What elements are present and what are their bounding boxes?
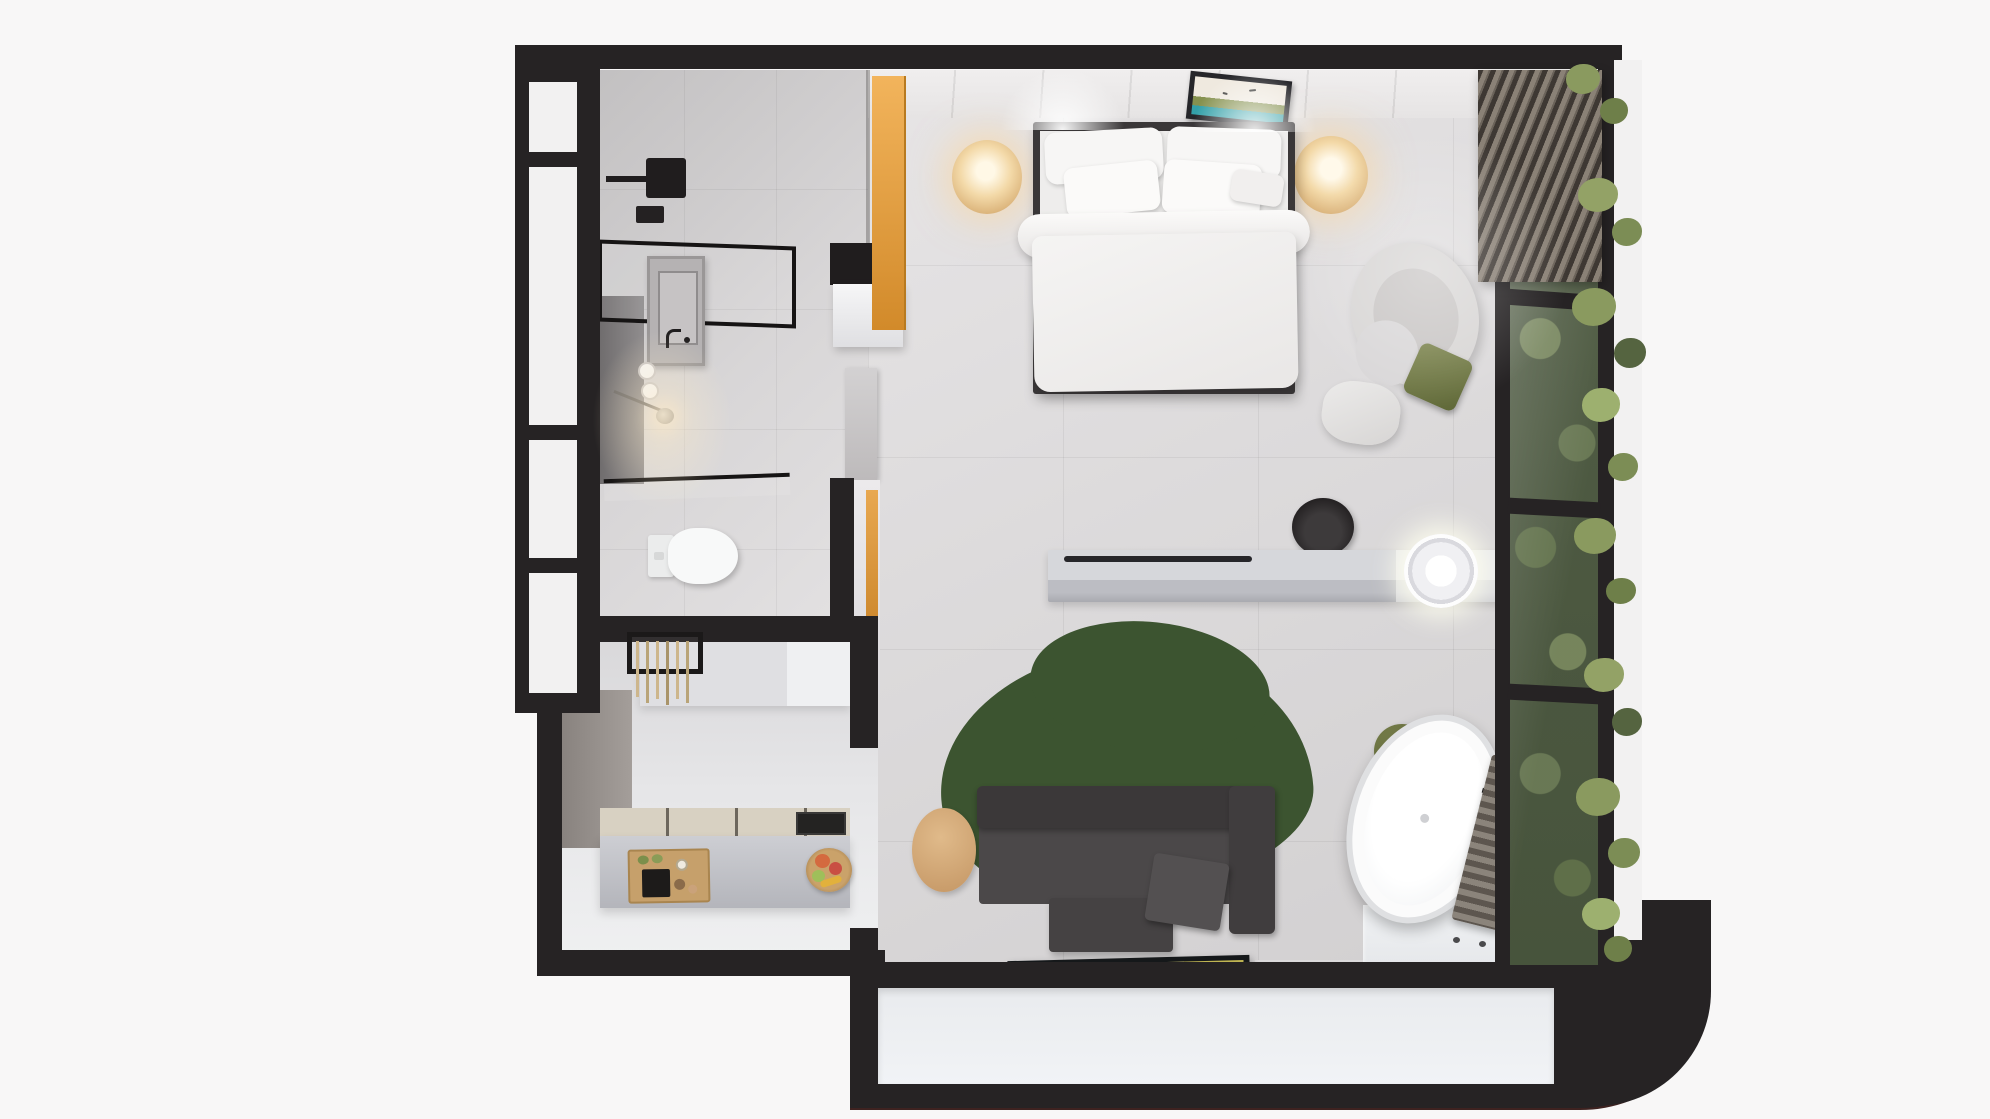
cutting-board (628, 848, 711, 903)
plant-leaf (1608, 453, 1638, 481)
sofa-backrest (977, 786, 1239, 828)
side-table (912, 808, 976, 892)
toilet-flush-button (654, 552, 664, 560)
window-pane (529, 82, 577, 152)
bathroom-bedroom-divider-line (866, 70, 870, 250)
bedside-lamp-right (1294, 136, 1368, 214)
round-basin (1404, 534, 1478, 608)
herb-dot (638, 855, 649, 864)
bedside-lamp-left (952, 140, 1022, 214)
toilet-paper-roll (638, 362, 656, 380)
plant-leaf (1604, 936, 1632, 962)
shower-head (646, 158, 686, 198)
fruit-bowl (806, 848, 852, 892)
drain-hole (1453, 937, 1460, 943)
plant-leaf (1576, 778, 1620, 816)
window-pane (529, 167, 577, 425)
herb-dot (652, 854, 663, 863)
plant-leaf (1600, 98, 1628, 124)
black-pan (642, 869, 670, 897)
pillow (1063, 159, 1162, 219)
faucet-icon (666, 329, 681, 348)
plant-leaf (1612, 218, 1642, 246)
kitchen-left-wall (537, 700, 562, 975)
towel (636, 641, 639, 697)
wardrobe-orange-panel (872, 76, 906, 330)
jar (676, 859, 688, 871)
outer-wall-top (515, 45, 1622, 69)
window-pane (529, 573, 577, 693)
plant-leaf (1578, 178, 1618, 212)
drain-hole (1479, 941, 1486, 947)
sofa (977, 786, 1275, 952)
left-window-wall (515, 45, 600, 713)
cup (674, 879, 685, 890)
plant-leaf (1572, 288, 1616, 326)
towel (676, 641, 679, 699)
desk-pen-tray (1064, 556, 1252, 562)
toilet-bowl (668, 528, 738, 584)
plant-leaf (1574, 518, 1616, 554)
towel (656, 641, 659, 699)
balcony-deck-floor (878, 988, 1554, 1084)
floor-plan-render (0, 0, 1990, 1119)
plant-leaf (1614, 338, 1646, 368)
shower-arm (606, 176, 650, 182)
fruit-orange (815, 854, 830, 868)
towel-rail (627, 632, 703, 674)
plant-leaf (1606, 578, 1636, 604)
bathroom-dark-wall-panel (596, 296, 644, 484)
sofa-armrest (1229, 786, 1275, 934)
plant-leaf (1582, 388, 1620, 422)
vanity-unit (647, 256, 705, 366)
towel (686, 641, 689, 703)
kitchen-bottom-wall (537, 950, 885, 976)
window-pane (529, 440, 577, 558)
plant-leaf (1612, 708, 1642, 736)
shower-valve (636, 206, 664, 223)
desk-chair (1292, 498, 1354, 556)
plant-leaf (1582, 898, 1620, 930)
plant-leaf (1584, 658, 1624, 692)
duvet (1017, 209, 1312, 394)
wardrobe-black-module (830, 243, 876, 285)
cup (688, 885, 697, 894)
pendant-light (656, 408, 674, 424)
towel (646, 641, 649, 703)
partition-orange-sliver (866, 490, 878, 618)
towel (666, 641, 669, 705)
kitchen-sink (796, 812, 846, 835)
plant-leaf (1566, 64, 1600, 94)
wall-art-canvas (1191, 76, 1286, 123)
facade-plants (1548, 58, 1678, 973)
kitchen-doorway-stub-top (850, 616, 878, 748)
plant-leaf (1608, 838, 1640, 868)
toilet-paper-roll (641, 382, 659, 400)
faucet-handle-dot (684, 337, 690, 343)
partition-gray-panel (845, 368, 877, 480)
duvet-body (1032, 232, 1299, 393)
toilet (648, 528, 738, 584)
fruit-red (829, 862, 842, 875)
sofa-cushion (1144, 852, 1230, 931)
